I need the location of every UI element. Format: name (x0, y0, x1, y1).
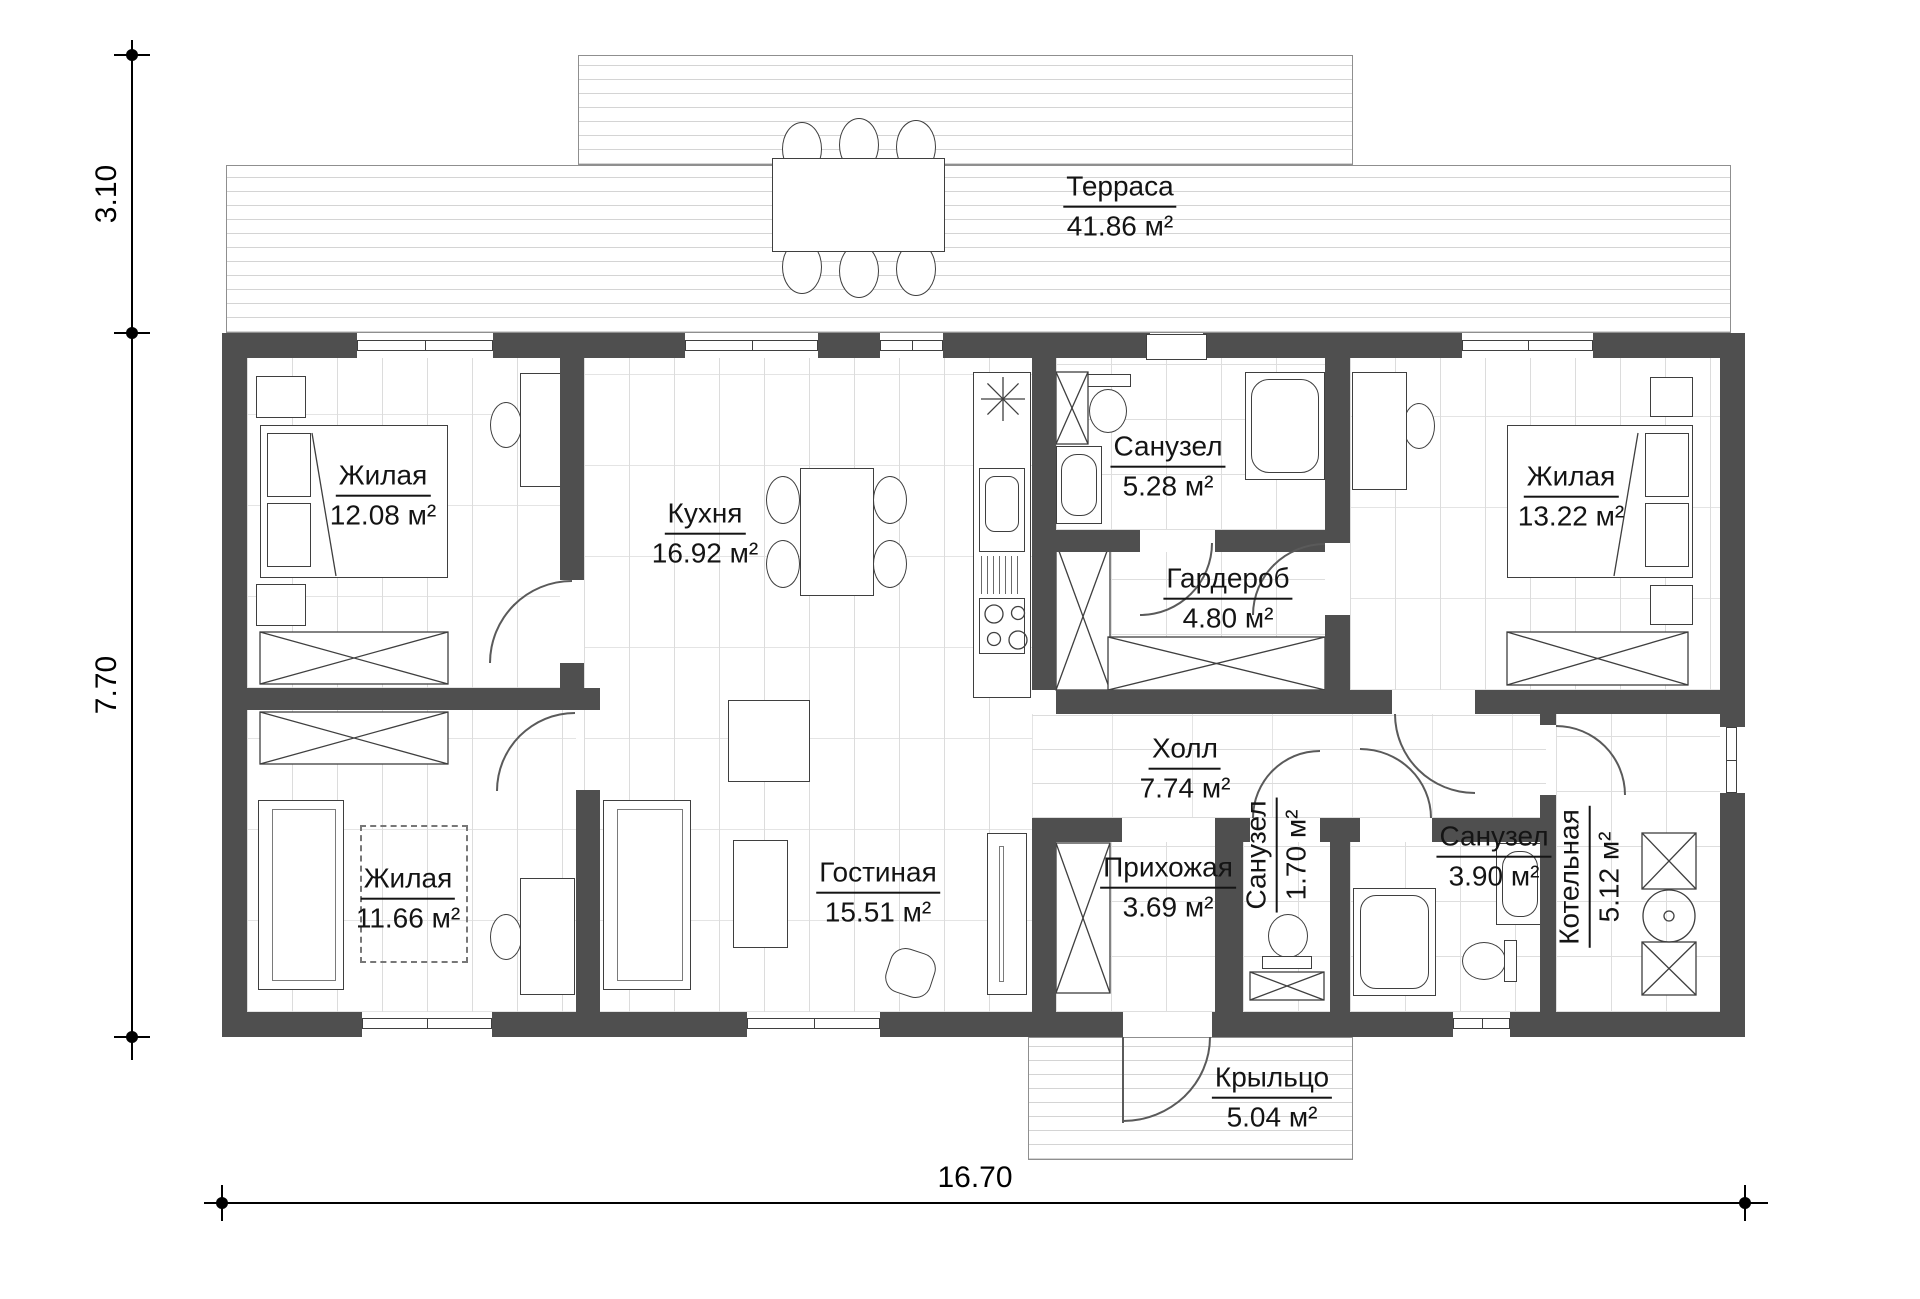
window (685, 340, 818, 351)
window-divider (814, 1018, 815, 1029)
chair (766, 540, 800, 588)
toilet-bowl (1089, 389, 1127, 433)
toilet-bowl (1462, 942, 1506, 980)
dimension-tick (114, 54, 150, 56)
dimension-tick (221, 1185, 223, 1221)
tv (999, 846, 1004, 982)
wall (560, 663, 584, 688)
room-area: 3.69 м² (1100, 893, 1236, 924)
sofa-seat (272, 809, 336, 981)
chair (490, 914, 522, 960)
wall (818, 333, 880, 358)
dimension-line-horizontal (204, 1202, 1768, 1204)
window (362, 1018, 492, 1029)
wall (1330, 842, 1350, 1012)
toilet-bowl (1268, 914, 1308, 958)
wall (222, 333, 247, 1037)
pillow (1645, 433, 1689, 497)
room-name: Жилая (1524, 462, 1619, 498)
tv-stand (987, 833, 1027, 995)
room-name: Гостиная (816, 858, 940, 894)
window (1462, 340, 1593, 351)
room-name: Гардероб (1163, 564, 1292, 600)
drainboard (981, 556, 1023, 594)
wall (1475, 690, 1720, 714)
pillow (1645, 503, 1689, 567)
sink-basin (985, 476, 1019, 532)
wall (222, 688, 600, 710)
wall (576, 790, 600, 1012)
room-area: 5.28 м² (1110, 472, 1225, 503)
wall (1325, 615, 1350, 712)
toilet-tank (1504, 940, 1517, 982)
window-divider (1482, 1018, 1483, 1029)
room-label-living: Гостиная15.51 м² (816, 858, 940, 929)
chair (873, 540, 907, 588)
room-label-hall: Холл7.74 м² (1140, 734, 1231, 805)
terrace-decking (226, 165, 1731, 333)
wall (1056, 530, 1140, 552)
wall (1325, 358, 1350, 543)
room-name: Прихожая (1100, 853, 1236, 889)
pillow (267, 503, 311, 567)
table (728, 700, 810, 782)
wall (1032, 818, 1056, 1012)
room-label-bathroom-1: Санузел5.28 м² (1110, 432, 1225, 503)
window (357, 340, 493, 351)
wall (1720, 333, 1745, 727)
window (880, 340, 943, 351)
wall (880, 1012, 1123, 1037)
wall (1032, 818, 1122, 842)
wall (1720, 793, 1745, 1037)
dimension-line-vertical (131, 40, 133, 1060)
room-area: 3.90 м² (1436, 862, 1551, 893)
room-area: 5.12 м² (1595, 806, 1626, 948)
nightstand (1650, 377, 1693, 417)
room-label-kitchen: Кухня16.92 м² (652, 499, 758, 570)
dim-house-width: 16.70 (937, 1161, 1012, 1195)
room-area: 1.70 м² (1282, 797, 1313, 912)
room-label-terrace: Терраса41.86 м² (1063, 172, 1176, 243)
room-label-wc: Санузел1.70 м² (1242, 797, 1313, 912)
toilet-tank (1262, 956, 1312, 969)
dining-table (800, 468, 874, 596)
room-name: Санузел (1436, 822, 1551, 858)
room-label-bedroom-2: Жилая13.22 м² (1518, 462, 1624, 533)
dimension-tick (114, 332, 150, 334)
wall (1032, 358, 1056, 690)
room-name: Жилая (361, 864, 456, 900)
room-area: 41.86 м² (1063, 212, 1176, 243)
chair (766, 476, 800, 524)
shower-tray (1360, 895, 1429, 989)
window-divider (752, 340, 753, 351)
desk (520, 878, 575, 995)
window (1726, 727, 1737, 793)
room-area: 4.80 м² (1163, 604, 1292, 635)
room-area: 15.51 м² (816, 898, 940, 929)
wall (1212, 1012, 1453, 1037)
window (1453, 1018, 1510, 1029)
room-name: Терраса (1063, 172, 1176, 208)
wall (493, 333, 685, 358)
wall (492, 1012, 747, 1037)
chair (490, 402, 522, 448)
room-label-bedroom-1: Жилая12.08 м² (330, 461, 436, 532)
chair (839, 244, 879, 298)
dimension-tick (114, 1036, 150, 1038)
chair (1403, 403, 1435, 449)
window-divider (427, 1018, 428, 1029)
window-divider (1726, 760, 1737, 761)
room-name: Санузел (1242, 797, 1278, 912)
room-name: Крыльцо (1212, 1063, 1332, 1099)
window-divider (1528, 340, 1529, 351)
dim-house-depth: 7.70 (90, 656, 124, 714)
desk (1352, 372, 1407, 490)
window-divider (912, 340, 913, 351)
terrace-decking (578, 55, 1353, 165)
room-label-bathroom-2: Санузел3.90 м² (1436, 822, 1551, 893)
room-area: 5.04 м² (1212, 1103, 1332, 1134)
room-area: 7.74 м² (1140, 774, 1231, 805)
floor-plan: Терраса41.86 м²Жилая12.08 м²Кухня16.92 м… (0, 0, 1920, 1299)
coffee-table (733, 840, 788, 948)
dim-terrace-depth: 3.10 (90, 165, 124, 223)
room-label-boiler: Котельная5.12 м² (1555, 806, 1626, 948)
chair (873, 476, 907, 524)
room-area: 13.22 м² (1518, 502, 1624, 533)
wall (1203, 333, 1462, 358)
room-label-wardrobe: Гардероб4.80 м² (1163, 564, 1292, 635)
toilet-tank (1085, 374, 1131, 387)
bathtub-inner (1251, 379, 1319, 473)
nightstand (256, 376, 306, 418)
nightstand (1650, 585, 1693, 625)
room-area: 12.08 м² (330, 501, 436, 532)
wall (1510, 1012, 1745, 1037)
room-label-entry: Прихожая3.69 м² (1100, 853, 1236, 924)
room-area: 16.92 м² (652, 539, 758, 570)
room-label-porch: Крыльцо5.04 м² (1212, 1063, 1332, 1134)
door-leaf (1122, 1037, 1124, 1123)
room-name: Жилая (336, 461, 431, 497)
room-name: Котельная (1555, 806, 1591, 948)
terrace-table (772, 158, 945, 252)
basin (1061, 454, 1097, 516)
room-name: Холл (1149, 734, 1221, 770)
wall (943, 333, 1150, 358)
stove (979, 598, 1025, 654)
wall (1540, 714, 1556, 725)
pillow (267, 433, 311, 497)
room-name: Санузел (1110, 432, 1225, 468)
room-area: 11.66 м² (356, 904, 460, 935)
sofa-seat (617, 809, 683, 981)
window (747, 1018, 880, 1029)
wall (1320, 818, 1360, 842)
wall (560, 358, 584, 580)
window-sill (1146, 334, 1207, 360)
room-name: Кухня (665, 499, 746, 535)
room-label-bedroom-3: Жилая11.66 м² (356, 864, 460, 935)
window-divider (425, 340, 426, 351)
dimension-tick (1744, 1185, 1746, 1221)
nightstand (256, 584, 306, 626)
